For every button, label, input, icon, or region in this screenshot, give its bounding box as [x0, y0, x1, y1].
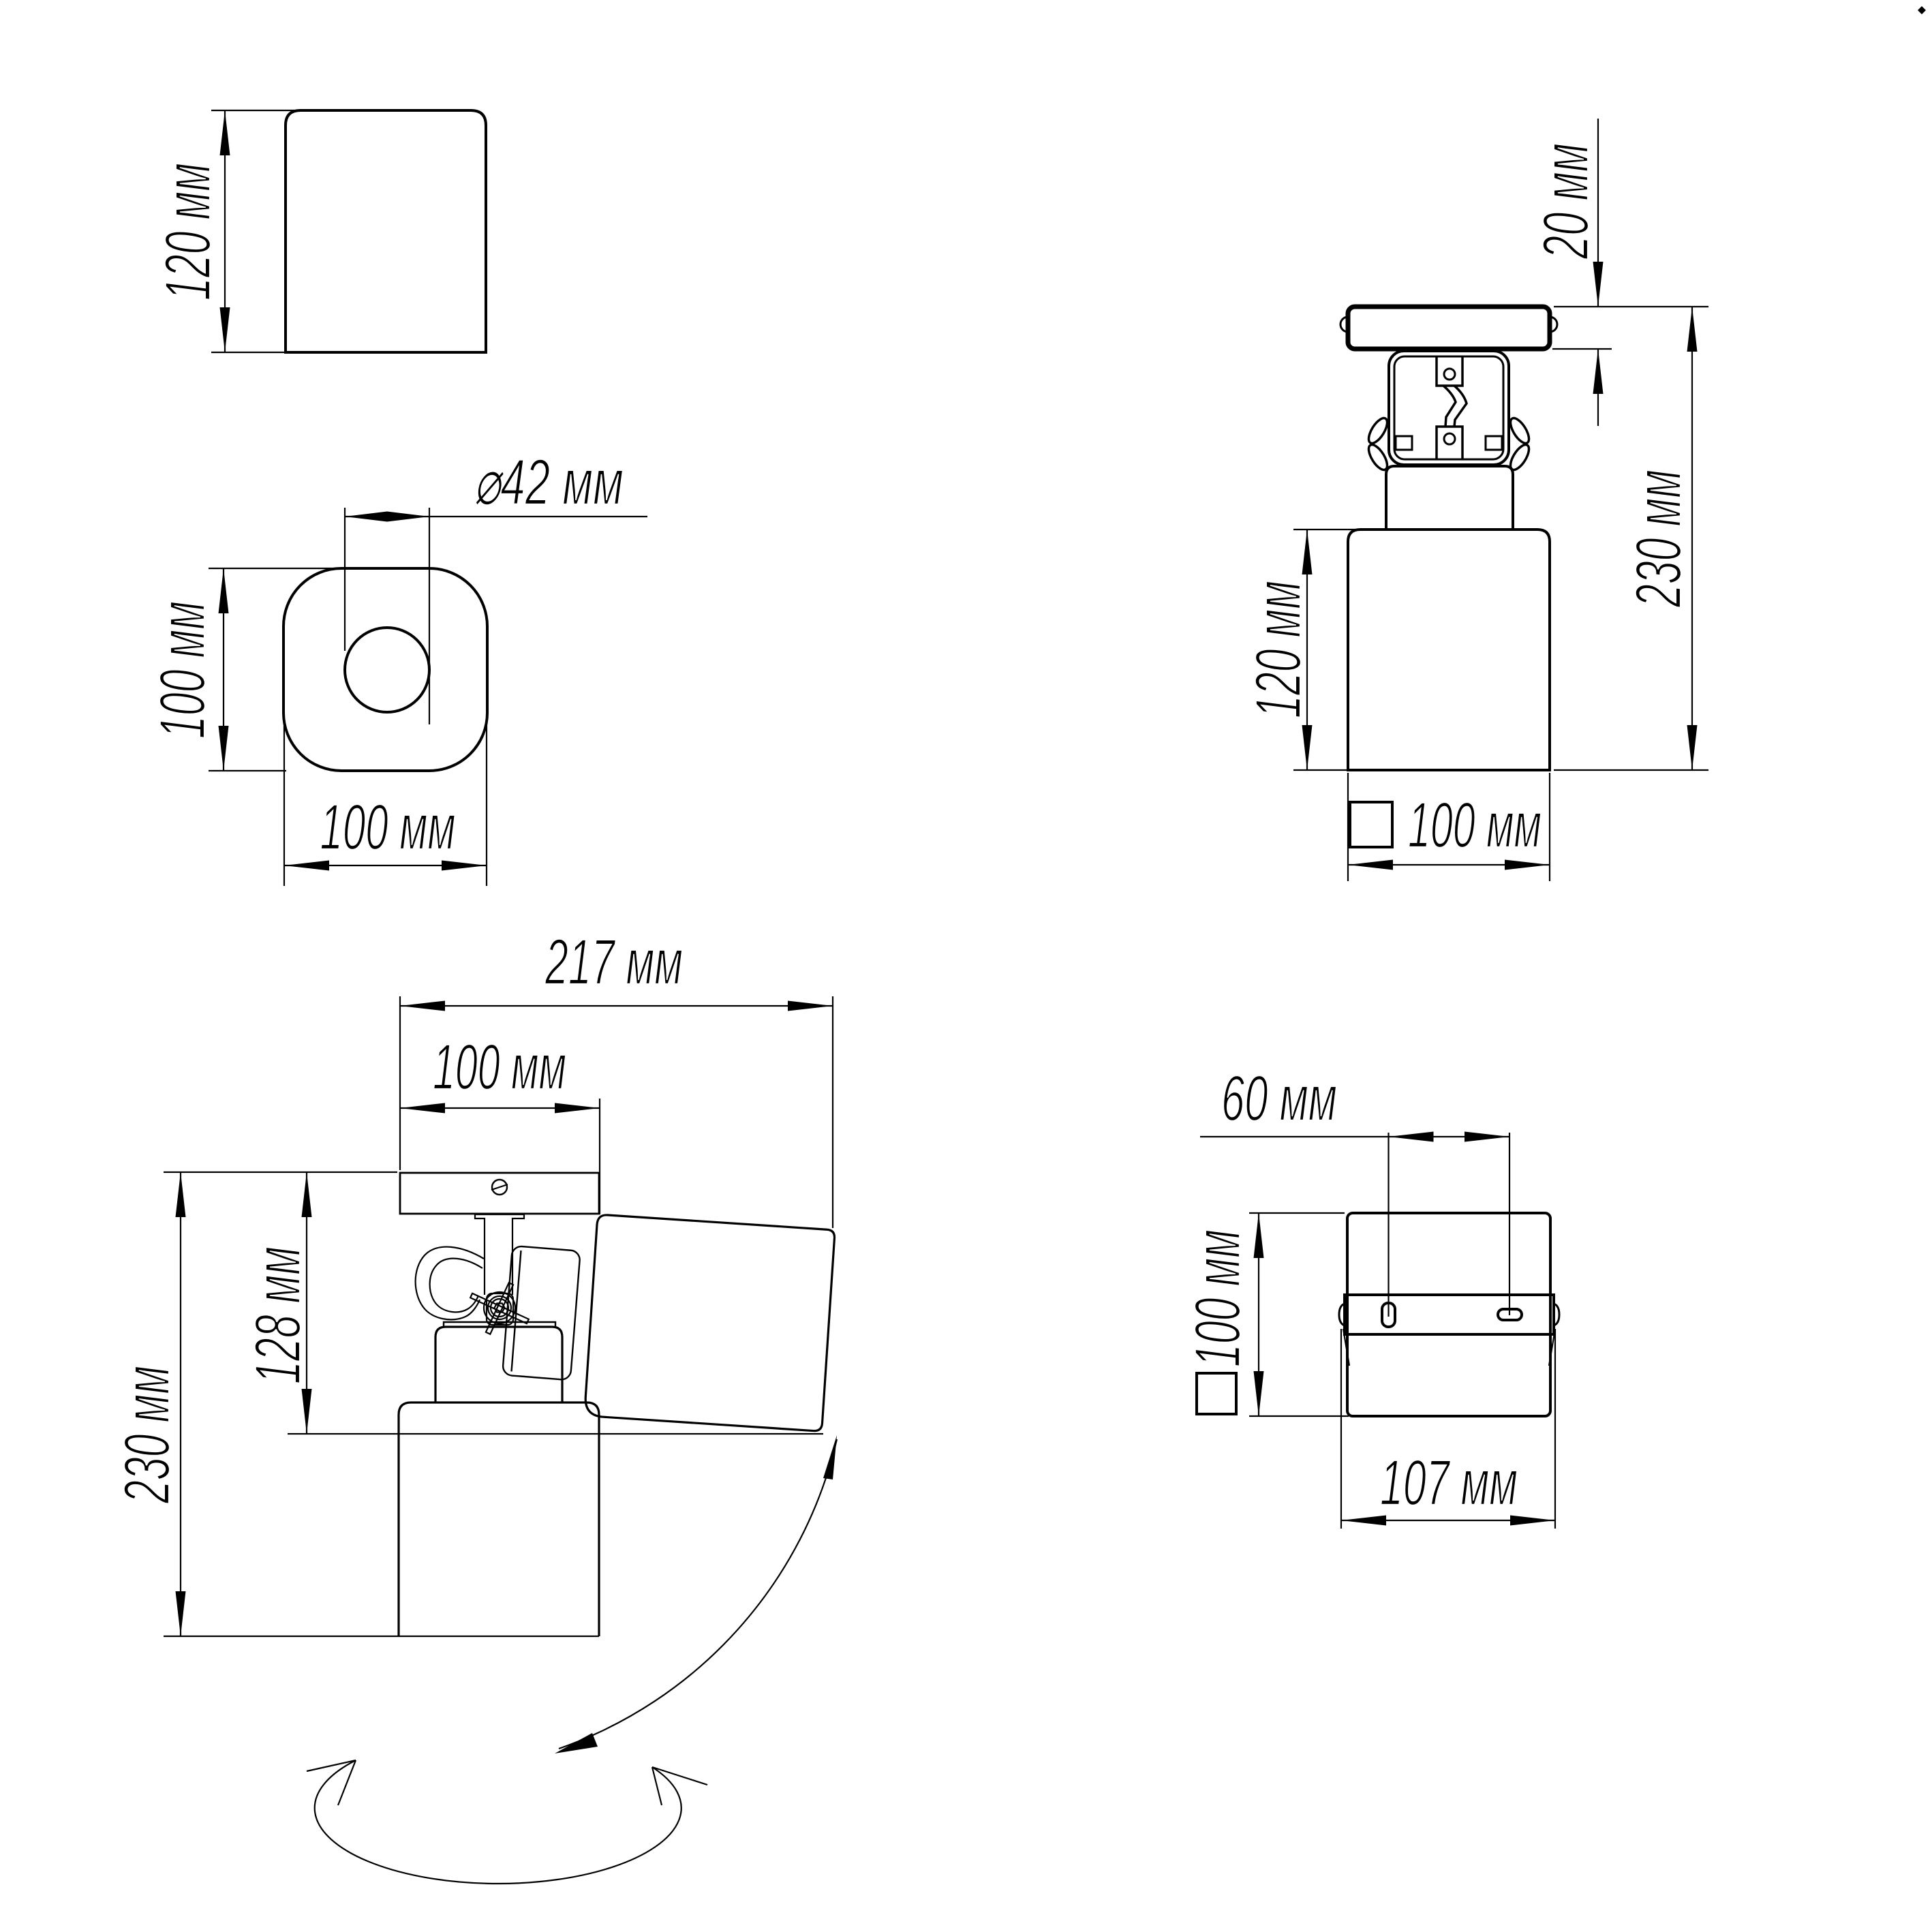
svg-text:⌀42 мм: ⌀42 мм — [474, 446, 624, 519]
svg-text:100 мм: 100 мм — [433, 1031, 566, 1103]
svg-text:60 мм: 60 мм — [1221, 1062, 1337, 1135]
svg-text:120 мм: 120 мм — [152, 163, 224, 301]
svg-text:107 мм: 107 мм — [1380, 1447, 1518, 1519]
svg-text:100 мм: 100 мм — [320, 791, 456, 863]
svg-text:100 мм: 100 мм — [1182, 1229, 1254, 1367]
svg-text:100 мм: 100 мм — [1408, 789, 1542, 861]
svg-text:230 мм: 230 мм — [111, 1366, 183, 1504]
svg-text:230 мм: 230 мм — [1623, 470, 1695, 608]
svg-text:217 мм: 217 мм — [545, 926, 683, 998]
svg-text:20 мм: 20 мм — [1530, 143, 1602, 260]
svg-text:100 мм: 100 мм — [147, 601, 219, 739]
svg-text:120 мм: 120 мм — [1242, 581, 1315, 718]
svg-text:128 мм: 128 мм — [242, 1246, 314, 1384]
